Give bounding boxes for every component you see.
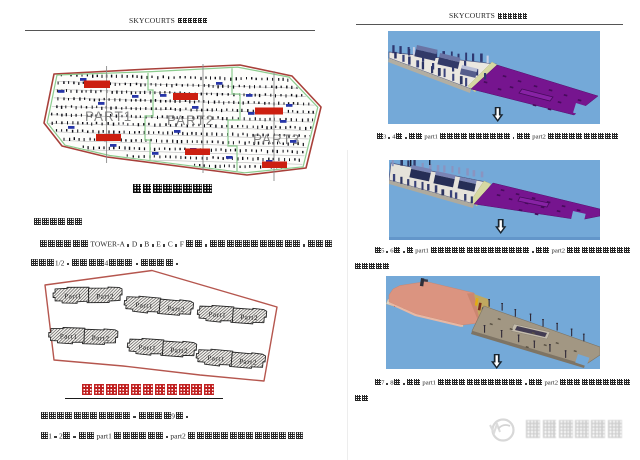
svg-text:Part2: Part2 [96, 292, 114, 300]
svg-text:Part2: Part2 [167, 304, 185, 314]
svg-text:Part2: Part2 [170, 346, 188, 355]
svg-text:Part1: Part1 [207, 354, 225, 364]
svg-text:Part2: Part2 [92, 334, 110, 343]
svg-text:Part1: Part1 [64, 292, 82, 300]
svg-text:Part1: Part1 [138, 343, 156, 352]
svg-text:Part1: Part1 [135, 301, 153, 311]
svg-text:PART3: PART3 [253, 132, 300, 147]
svg-text:Part2: Part2 [239, 357, 257, 367]
svg-text:PART1: PART1 [85, 109, 132, 124]
svg-text:Part1: Part1 [208, 310, 226, 319]
svg-text:Part2: Part2 [240, 313, 258, 322]
svg-text:Part1: Part1 [60, 332, 78, 341]
svg-text:PART2: PART2 [167, 113, 214, 128]
